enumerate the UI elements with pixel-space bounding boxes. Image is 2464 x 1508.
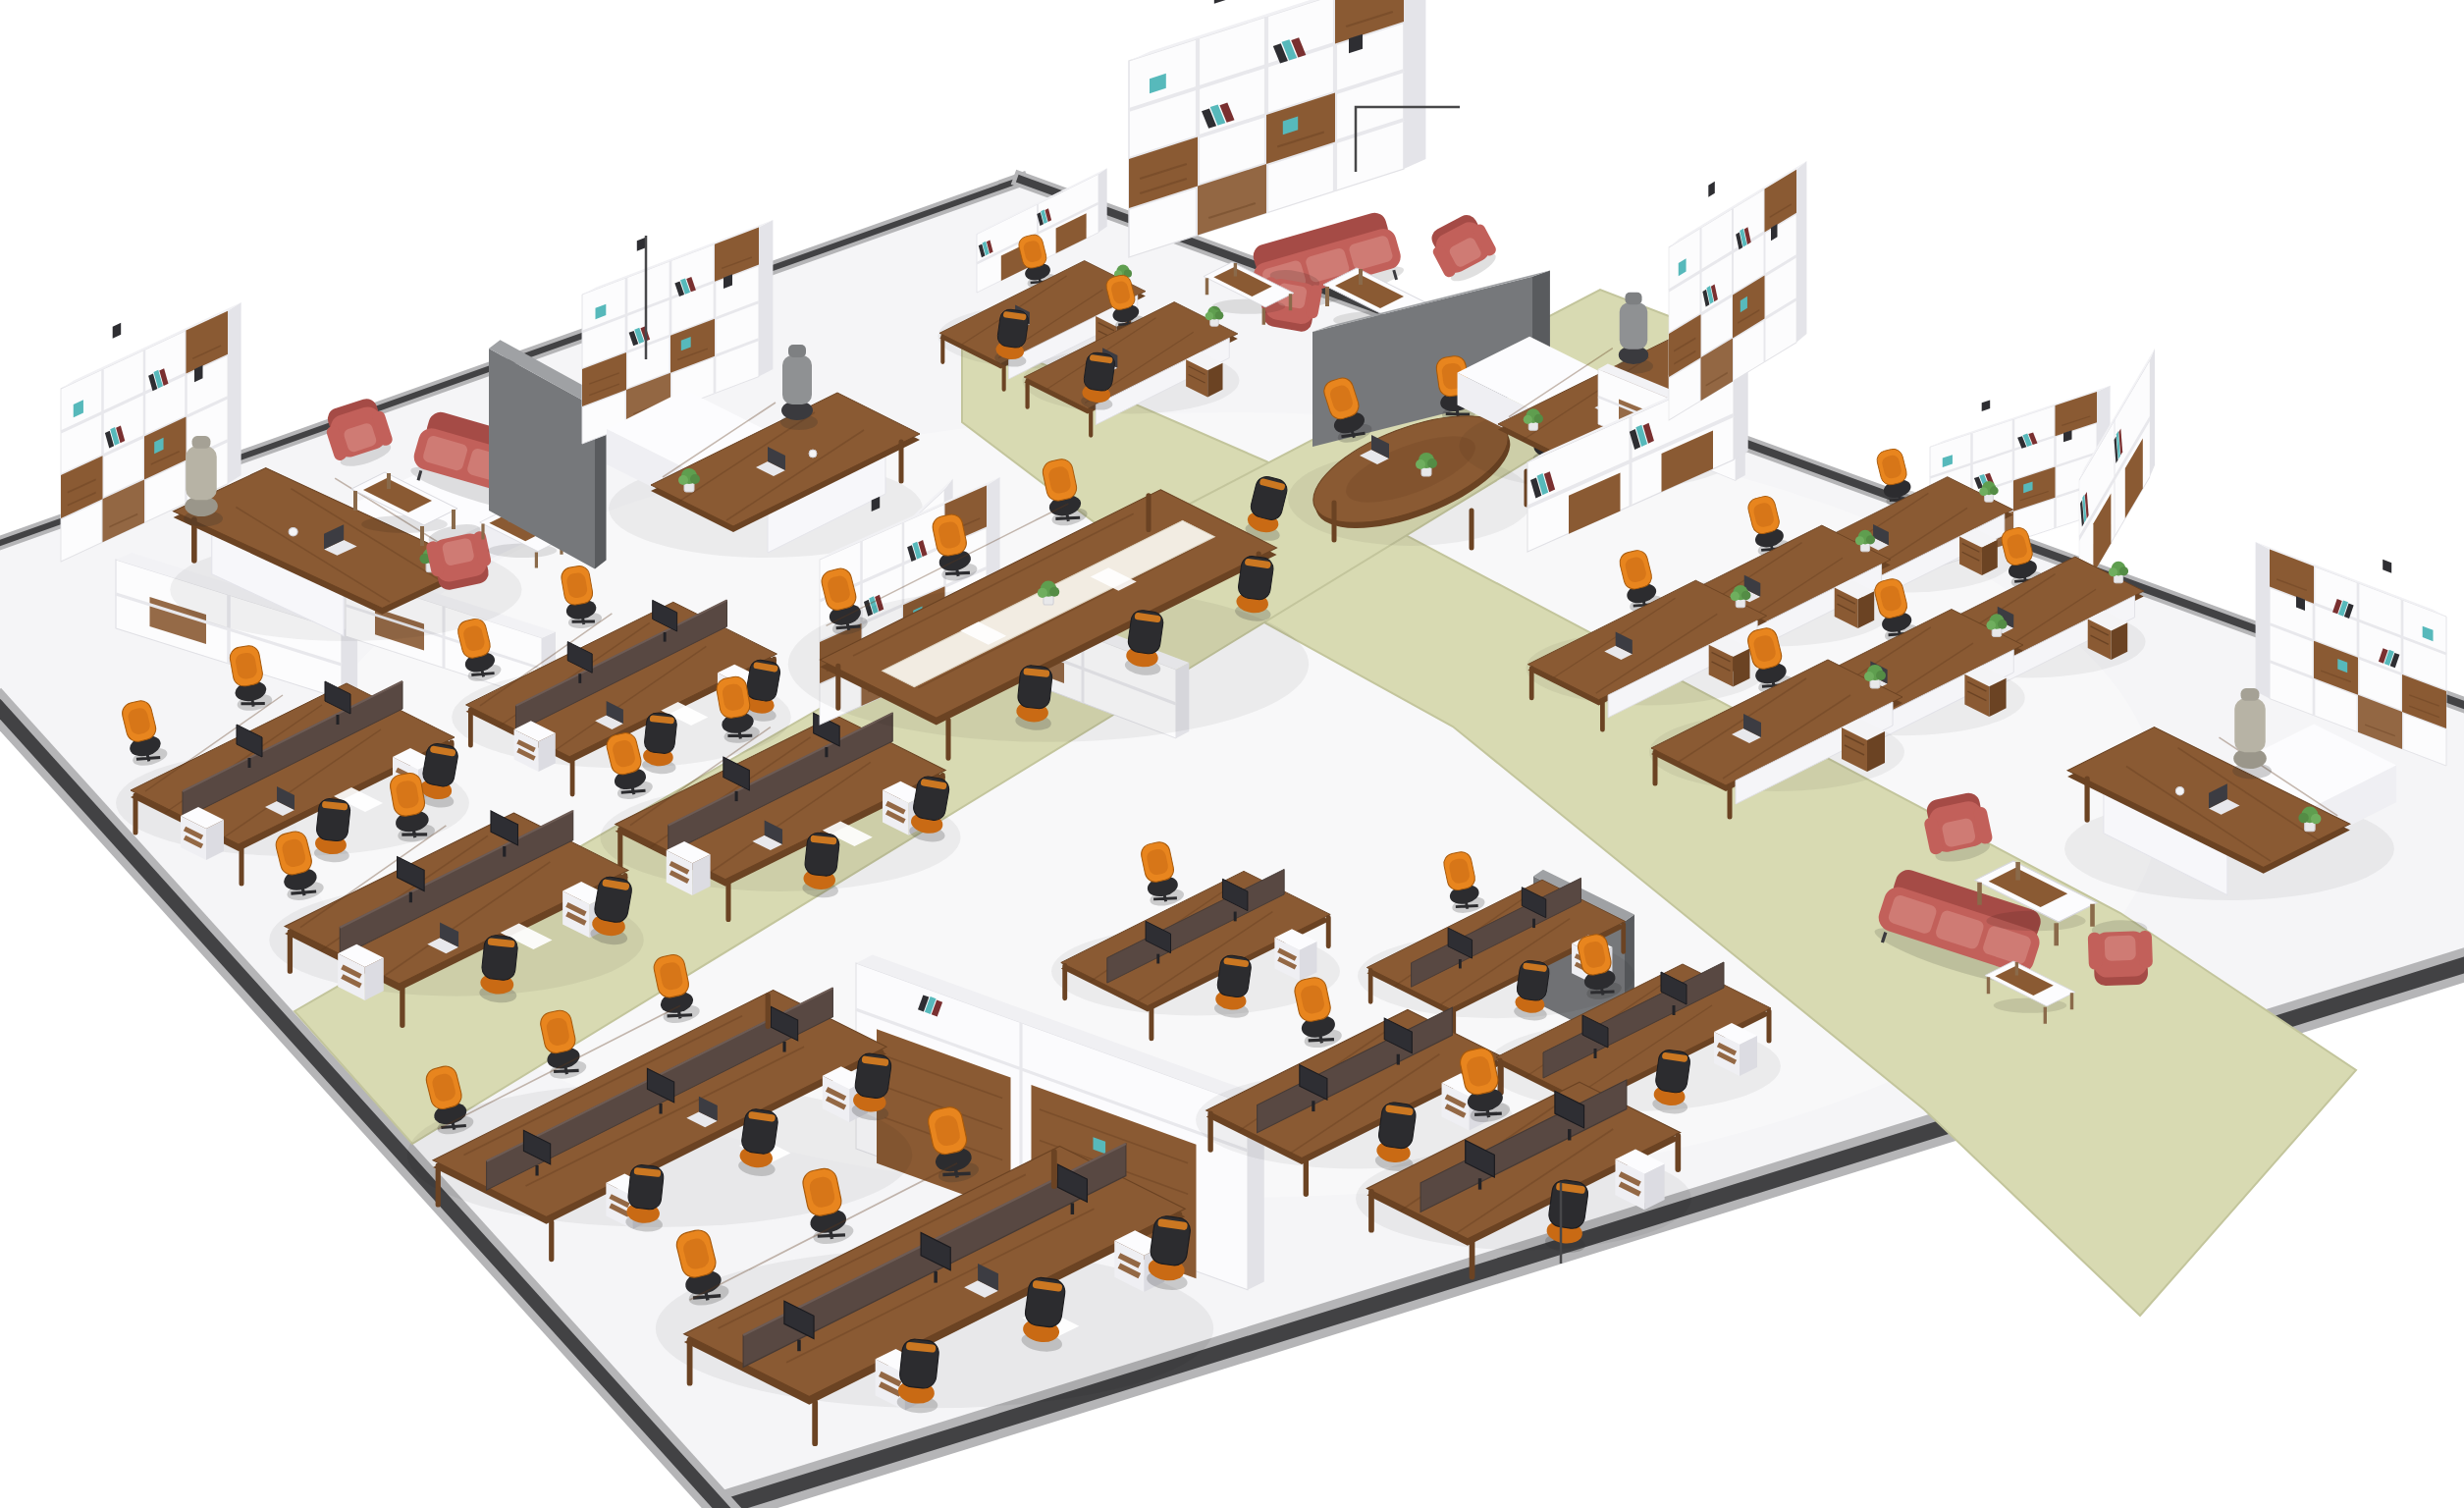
render-canvas	[0, 0, 2464, 1508]
office-floorplan-render	[0, 0, 2464, 1508]
tall-white-cabinet	[2079, 349, 2155, 597]
red-armchair	[2087, 919, 2153, 986]
red-armchair	[1424, 209, 1503, 288]
